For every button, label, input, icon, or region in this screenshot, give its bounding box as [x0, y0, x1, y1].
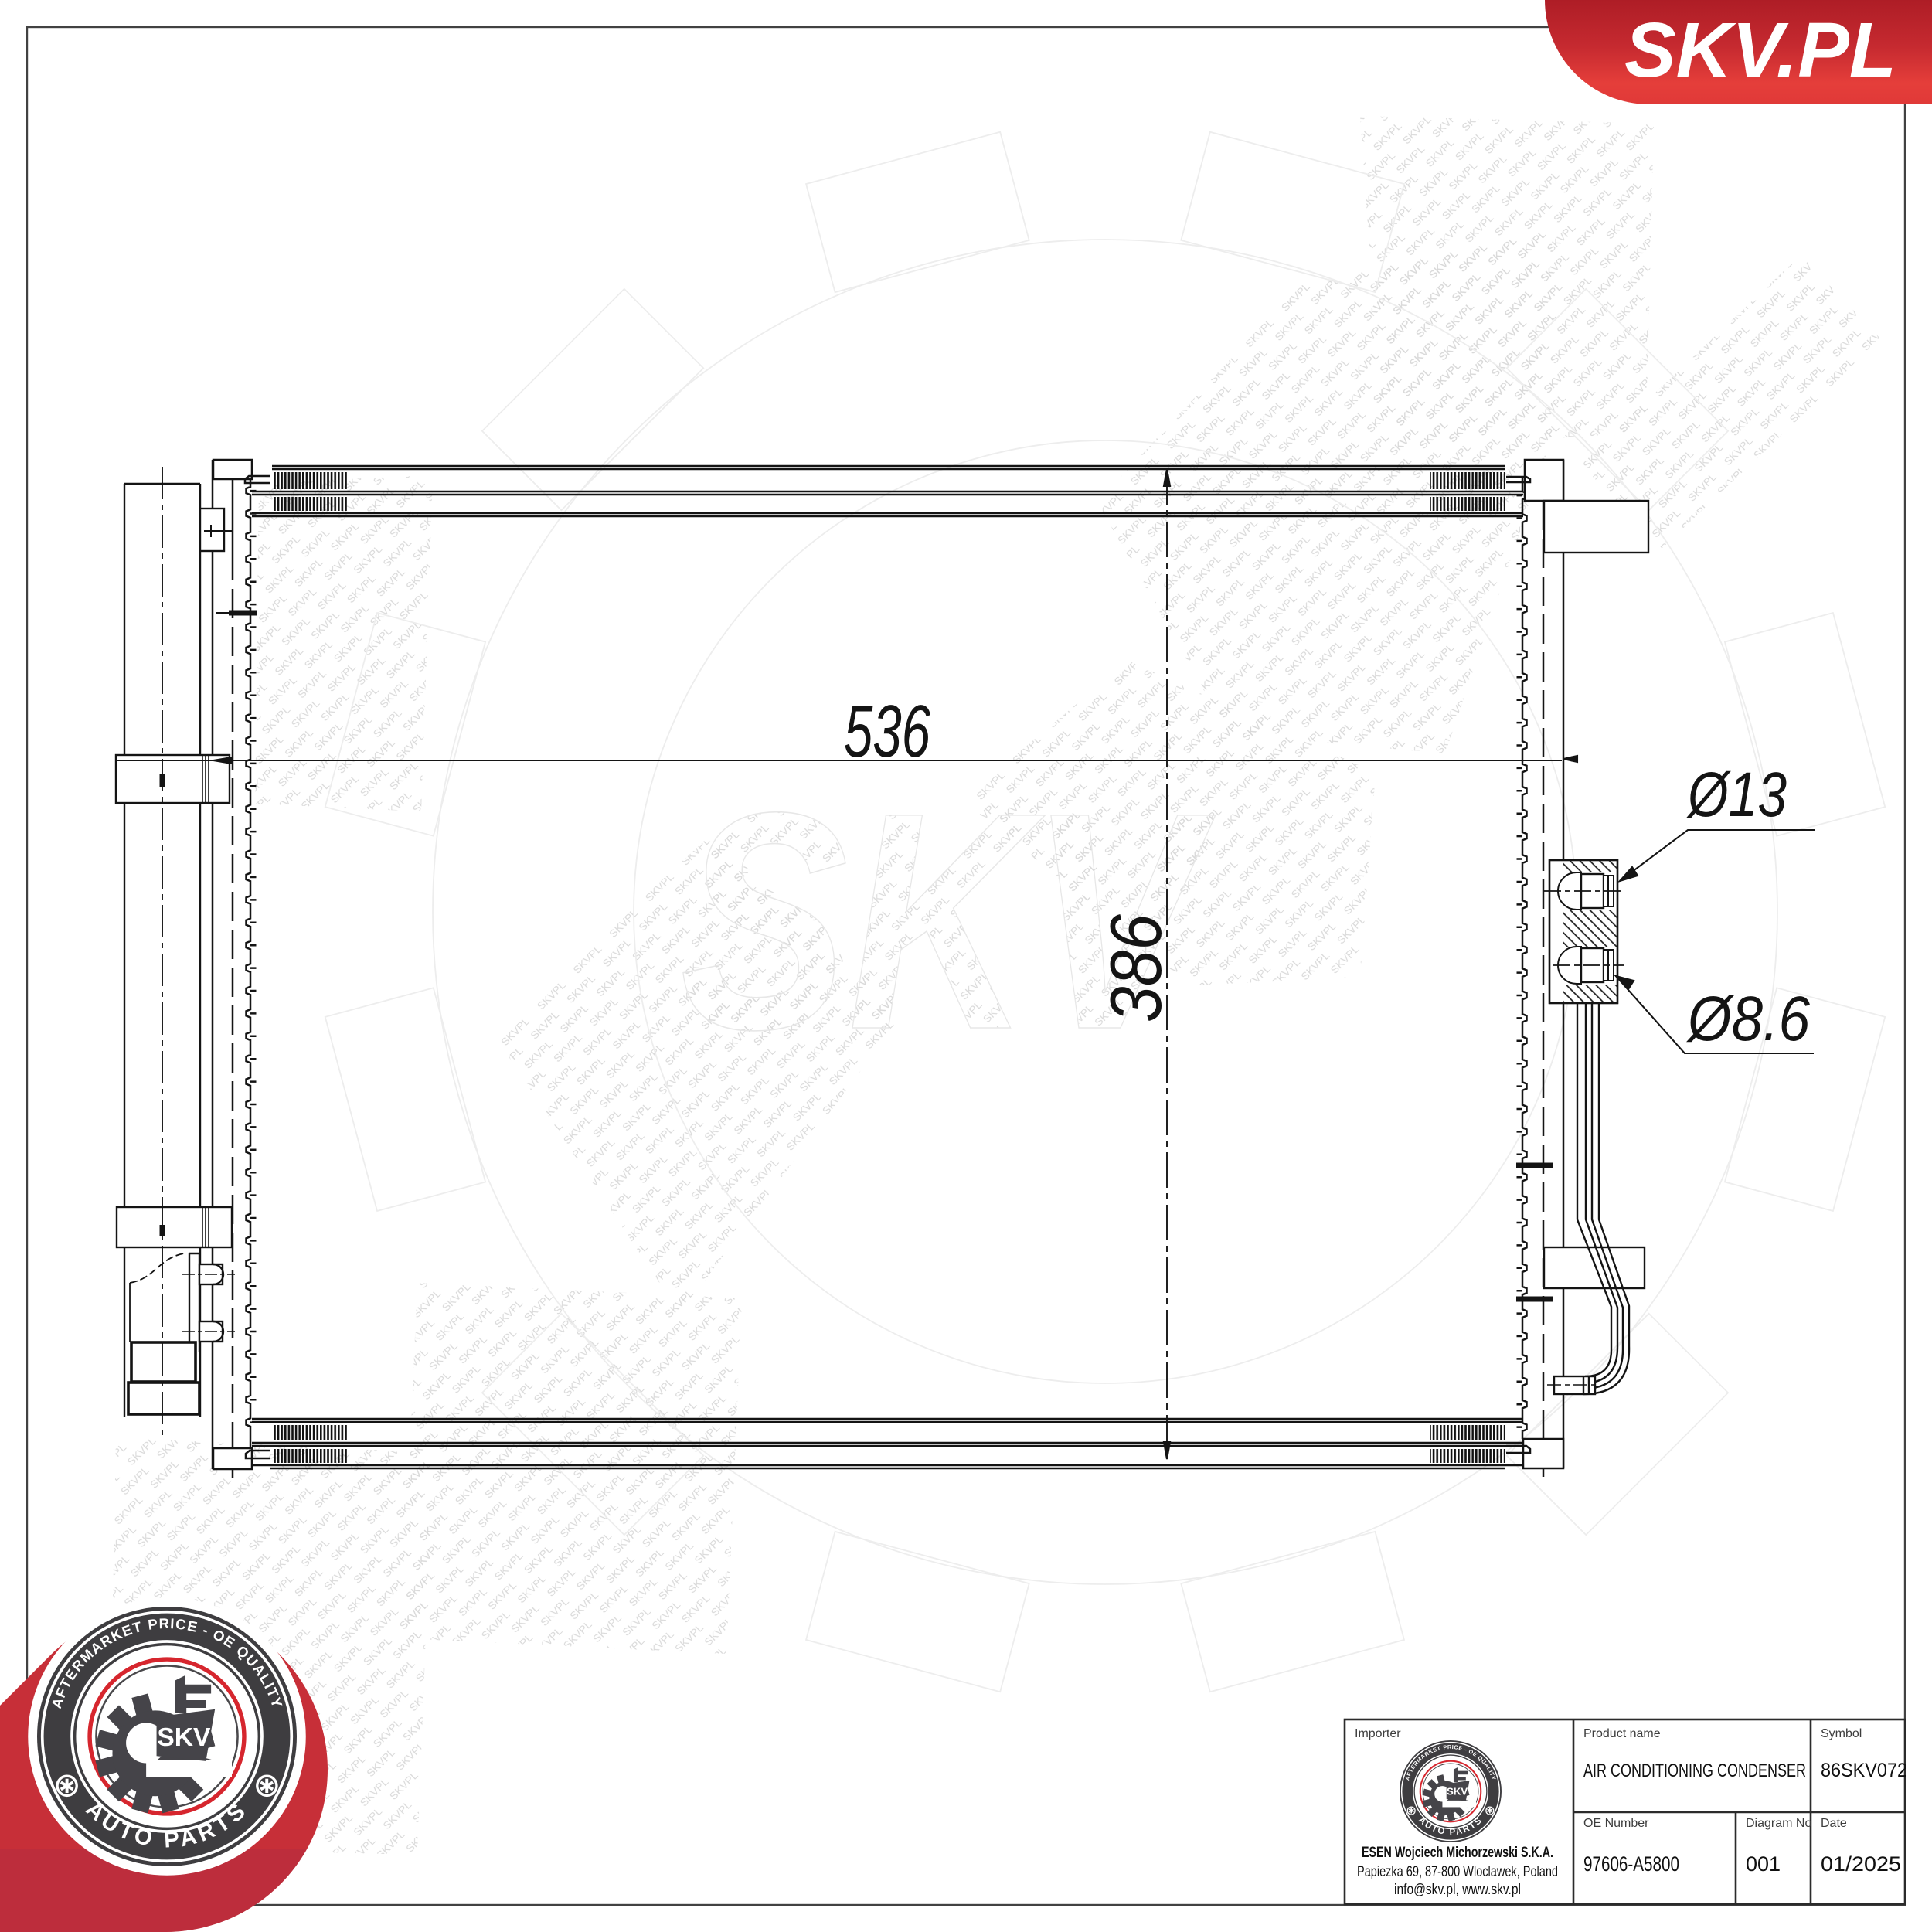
svg-text:ESEN Wojciech Michorzewski S.K: ESEN Wojciech Michorzewski S.K.A. — [1362, 1845, 1553, 1861]
svg-text:01/2025: 01/2025 — [1821, 1852, 1901, 1876]
svg-text:AIR CONDITIONING CONDENSER: AIR CONDITIONING CONDENSER — [1583, 1760, 1806, 1781]
svg-text:Diagram No: Diagram No — [1746, 1817, 1811, 1830]
svg-text:536: 536 — [844, 690, 930, 773]
svg-text:SKV.PL: SKV.PL — [1624, 7, 1896, 94]
svg-text:386: 386 — [1095, 913, 1176, 1022]
svg-text:OE Number: OE Number — [1583, 1817, 1649, 1830]
svg-text:Importer: Importer — [1355, 1727, 1401, 1740]
svg-text:Product name: Product name — [1583, 1727, 1661, 1740]
svg-text:86SKV072: 86SKV072 — [1821, 1760, 1907, 1781]
svg-text:97606-A5800: 97606-A5800 — [1583, 1852, 1679, 1876]
svg-text:Ø8.6: Ø8.6 — [1685, 984, 1810, 1054]
svg-text:info@skv.pl, www.skv.pl: info@skv.pl, www.skv.pl — [1394, 1882, 1521, 1898]
svg-text:Papiezka 69, 87-800 Wloclawek,: Papiezka 69, 87-800 Wloclawek, Poland — [1357, 1864, 1558, 1880]
svg-text:Symbol: Symbol — [1821, 1727, 1862, 1740]
svg-text:Date: Date — [1821, 1817, 1847, 1830]
svg-text:Ø13: Ø13 — [1686, 760, 1787, 830]
svg-text:001: 001 — [1746, 1852, 1781, 1876]
